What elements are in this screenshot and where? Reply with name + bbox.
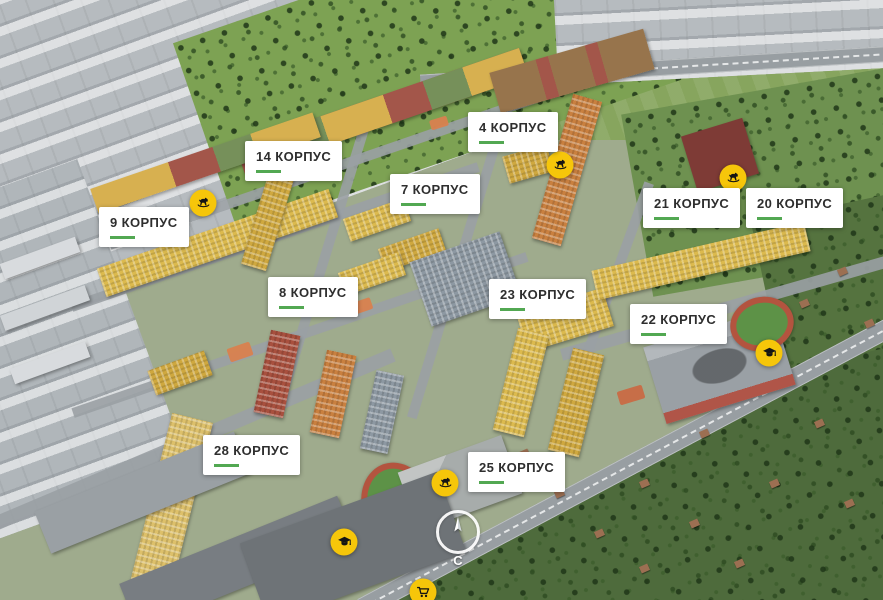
building-label-21[interactable]: 21 КОРПУС [643,188,740,228]
rocking-horse-icon [552,157,568,173]
building-label-23[interactable]: 23 КОРПУС [489,279,586,319]
rocking-horse-icon [437,475,453,491]
building-label-8[interactable]: 8 КОРПУС [268,277,358,317]
building-label-28[interactable]: 28 КОРПУС [203,435,300,475]
rocking-horse-icon [725,170,741,186]
compass-north-letter: С [453,553,462,568]
playground-patch [617,385,646,406]
building-label-4[interactable]: 4 КОРПУС [468,112,558,152]
playground-marker[interactable] [432,470,459,497]
building-label-25[interactable]: 25 КОРПУС [468,452,565,492]
building-label-22[interactable]: 22 КОРПУС [630,304,727,344]
building-block [310,350,357,438]
building-label-7[interactable]: 7 КОРПУС [390,174,480,214]
rocking-horse-icon [195,195,211,211]
shop-marker[interactable] [410,579,437,600]
playground-patch [226,341,253,362]
building-label-20[interactable]: 20 КОРПУС [746,188,843,228]
masterplan-map[interactable]: 14 КОРПУС 4 КОРПУС 7 КОРПУС 9 КОРПУС 21 … [0,0,883,600]
playground-marker[interactable] [190,190,217,217]
building-block [360,370,404,454]
school-marker[interactable] [331,529,358,556]
building-label-9[interactable]: 9 КОРПУС [99,207,189,247]
graduation-cap-icon [336,534,352,550]
graduation-cap-icon [761,345,777,361]
playground-marker[interactable] [547,152,574,179]
building-block [147,351,212,396]
building-label-14[interactable]: 14 КОРПУС [245,141,342,181]
building-block [493,328,549,438]
compass-needle-icon [442,513,474,545]
shopping-cart-icon [415,584,431,600]
school-marker[interactable] [756,340,783,367]
compass-rose [436,510,480,554]
building-block [548,348,604,458]
